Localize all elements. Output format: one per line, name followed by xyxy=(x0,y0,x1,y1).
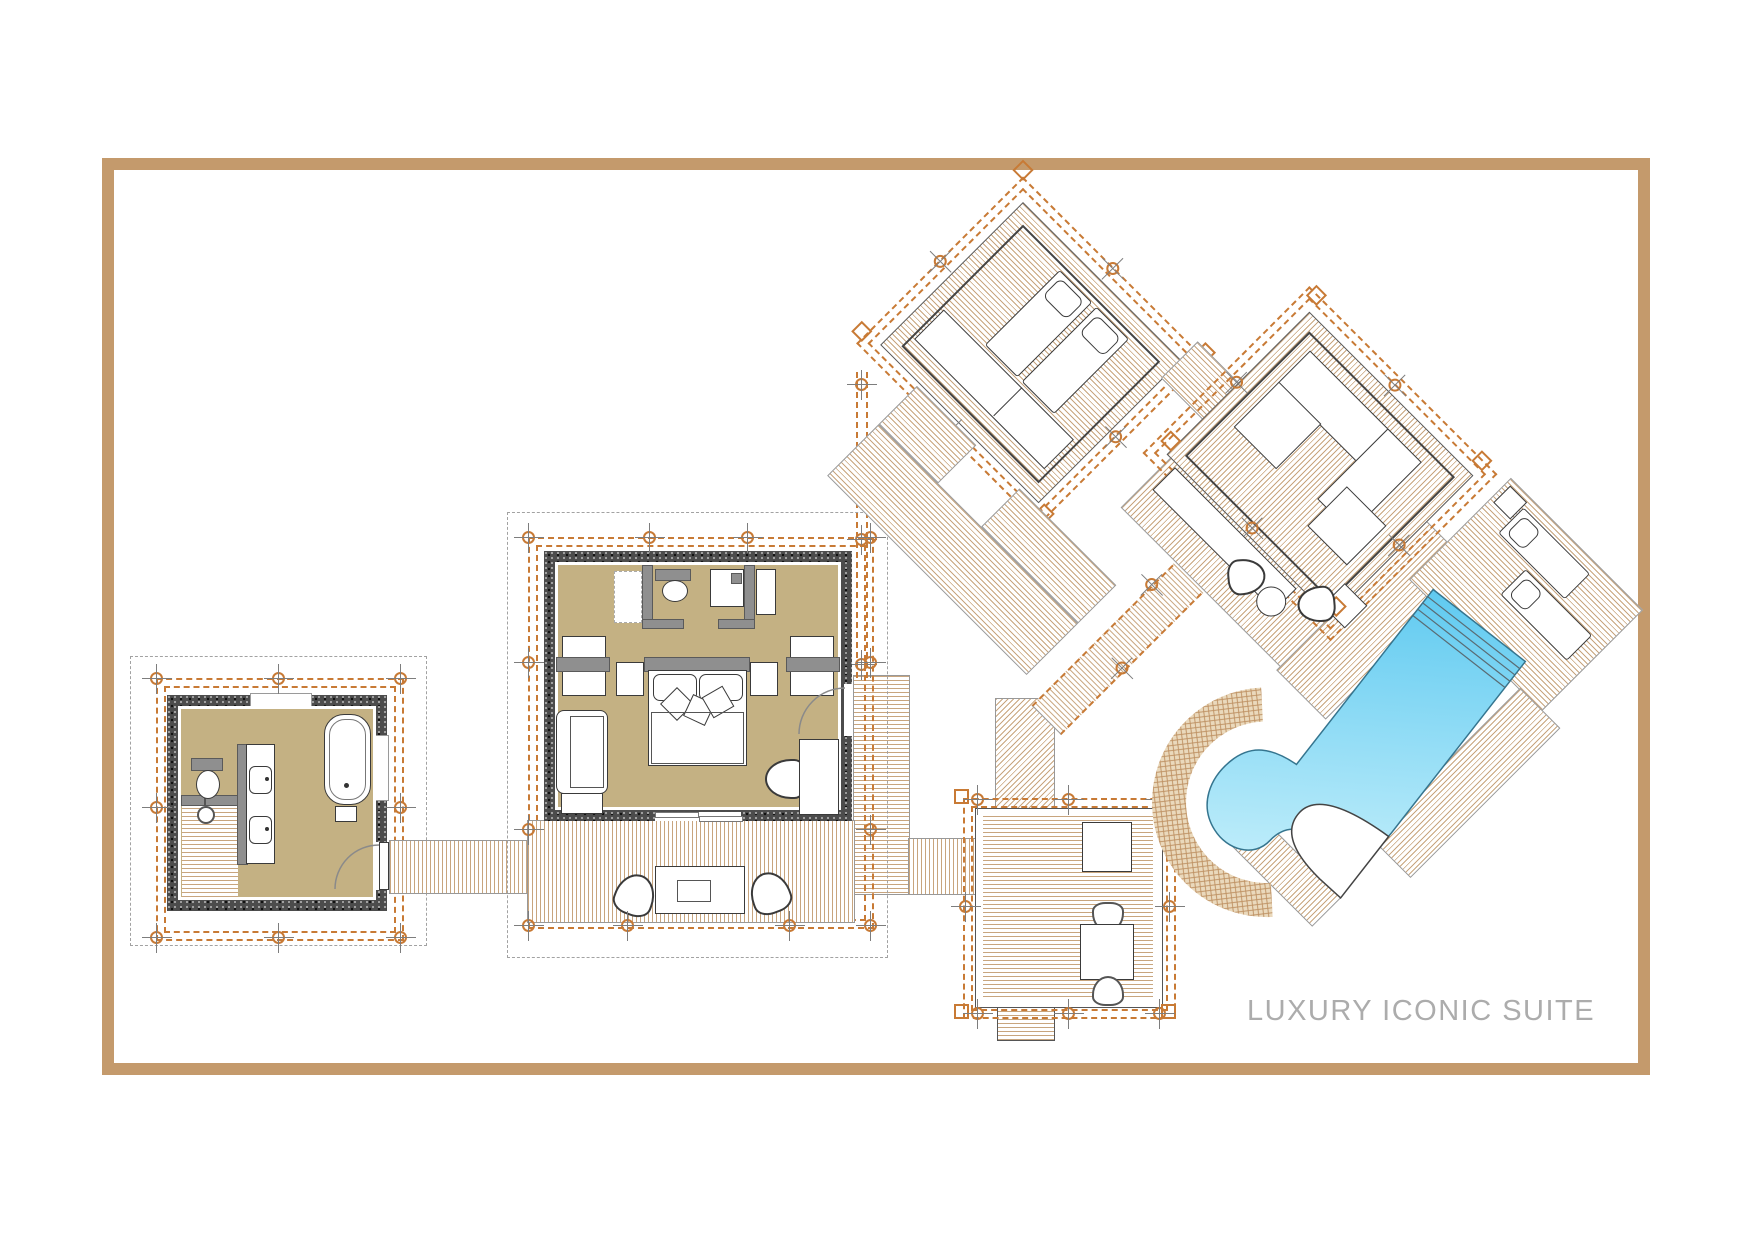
grid-corner-marker xyxy=(954,789,969,804)
grid-post xyxy=(959,900,972,913)
grid-post xyxy=(1163,900,1176,913)
grid-post xyxy=(150,931,163,944)
grid-post xyxy=(1227,373,1245,391)
bedside-table-right xyxy=(750,662,778,696)
grid-post xyxy=(272,672,285,685)
vanity-counter xyxy=(246,744,275,864)
grid-post xyxy=(394,931,407,944)
bench-rail-left xyxy=(556,657,610,672)
grid-post xyxy=(864,531,877,544)
slider-panel-1 xyxy=(655,812,699,818)
grid-post xyxy=(150,672,163,685)
grid-post xyxy=(643,531,656,544)
dining-table xyxy=(1080,924,1134,980)
faucet-dot-1 xyxy=(265,777,269,781)
vanity-faucet xyxy=(731,573,742,584)
bed-blanket xyxy=(651,712,744,764)
grid-post xyxy=(150,801,163,814)
grid-post xyxy=(1243,519,1261,537)
shower-head-icon xyxy=(197,806,215,824)
grid-post xyxy=(971,793,984,806)
grid-post xyxy=(1062,793,1075,806)
grid-post xyxy=(1143,575,1161,593)
grid-post xyxy=(1062,1007,1075,1020)
bathtub-drain xyxy=(344,783,349,788)
grid-post xyxy=(394,801,407,814)
faucet-dot-2 xyxy=(265,827,269,831)
bathroom-window-top xyxy=(250,693,312,707)
lounge-chair-seat xyxy=(570,716,604,788)
bedroom-door-gap xyxy=(844,684,852,736)
grid-post xyxy=(522,919,535,932)
floor-plan-page: LUXURY ICONIC SUITE xyxy=(0,0,1754,1239)
wc-toilet-bowl xyxy=(662,580,688,602)
grid-post xyxy=(1113,659,1131,677)
bathroom-window-right xyxy=(374,735,389,801)
bedside-table-left xyxy=(616,662,644,696)
wc-mat xyxy=(614,571,642,623)
grid-post xyxy=(621,919,634,932)
grid-post xyxy=(864,919,877,932)
writing-desk xyxy=(799,739,839,815)
grid-post xyxy=(522,531,535,544)
wc-wall-bottom xyxy=(642,619,684,629)
grid-post xyxy=(1106,428,1124,446)
grid-post xyxy=(522,656,535,669)
page-title: LUXURY ICONIC SUITE xyxy=(1247,995,1595,1028)
bench-rail-right xyxy=(786,657,840,672)
grid-post xyxy=(522,823,535,836)
grid-post xyxy=(1153,1007,1166,1020)
grid-post xyxy=(1104,259,1122,277)
grid-post xyxy=(394,672,407,685)
bathroom-door-leaf xyxy=(379,842,389,890)
toilet-bowl xyxy=(196,770,220,799)
grid-post xyxy=(864,656,877,669)
dining-chair-bottom xyxy=(1092,976,1124,1006)
bath-stool xyxy=(335,806,357,822)
wc-wall-bottom-right xyxy=(718,619,755,629)
grid-post xyxy=(864,823,877,836)
bathtub-inner xyxy=(329,719,366,800)
grid-corner-marker xyxy=(954,1004,969,1019)
side-table xyxy=(561,793,603,814)
grid-post xyxy=(931,252,949,270)
towel-cabinet xyxy=(756,569,776,615)
grid-post xyxy=(272,931,285,944)
grid-post xyxy=(741,531,754,544)
grid-post xyxy=(971,1007,984,1020)
slider-panel-2 xyxy=(699,816,743,822)
grid-post xyxy=(1386,376,1404,394)
terrace-table-inner xyxy=(677,880,711,902)
grid-post xyxy=(783,919,796,932)
grid-post xyxy=(855,378,868,391)
